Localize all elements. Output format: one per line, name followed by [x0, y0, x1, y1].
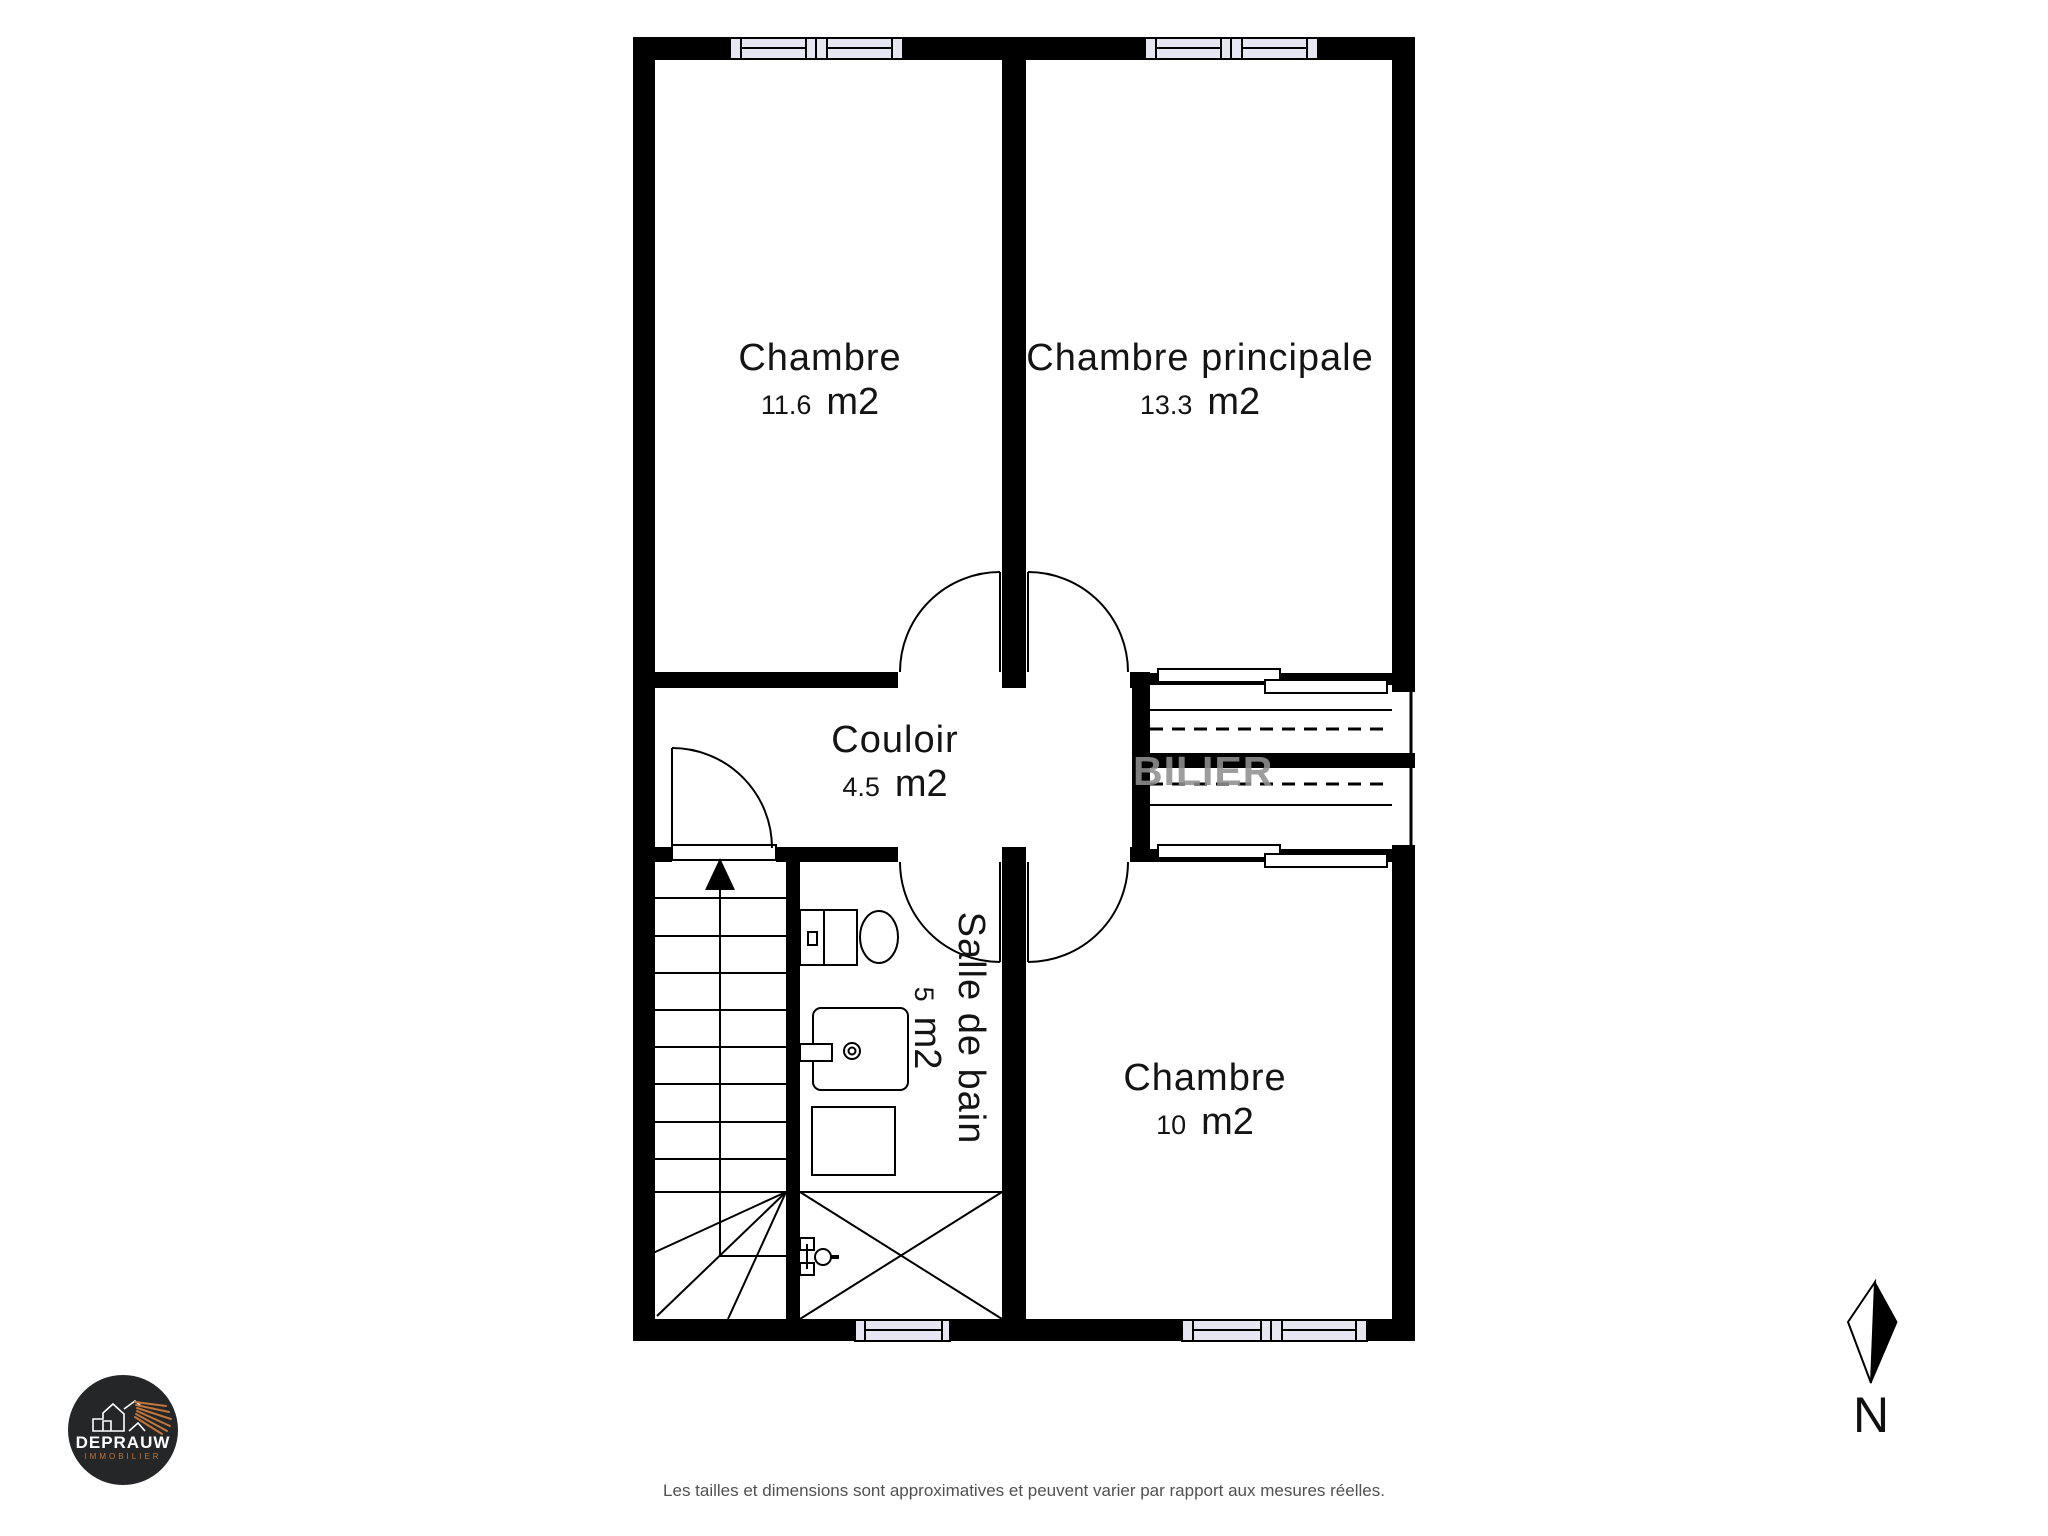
room-name: Couloir: [831, 718, 958, 762]
room-area: 4.5 m2: [831, 763, 958, 808]
north-label: N: [1853, 1386, 1889, 1444]
room-label-chambre-2: Chambre 10 m2: [1123, 1056, 1286, 1146]
room-label-salle-de-bain: Salle de bain 5 m2: [903, 912, 993, 1145]
room-area: 13.3 m2: [1026, 381, 1374, 426]
agency-logo: [68, 1375, 178, 1485]
area-value: 5: [903, 987, 945, 1002]
room-name: Chambre principale: [1026, 336, 1374, 380]
area-value: 13.3: [1140, 384, 1193, 426]
window-top-right: [1145, 38, 1318, 59]
toilet-icon: [800, 910, 898, 965]
room-label-couloir: Couloir 4.5 m2: [831, 718, 958, 808]
shower-valve-icon: [800, 1238, 839, 1275]
door-bedroom-left: [900, 572, 1000, 672]
wall-corridor-top-left: [633, 672, 898, 688]
north-compass-icon: [1848, 1282, 1897, 1383]
door-bedroom-bottom: [1028, 862, 1128, 962]
watermark-immobilier: BILIER: [1133, 748, 1273, 795]
room-label-chambre-1: Chambre 11.6 m2: [738, 336, 901, 426]
room-name: Salle de bain: [949, 912, 993, 1145]
cabinet-icon: [812, 1107, 895, 1175]
area-unit: m2: [895, 763, 948, 805]
stair-doorway-opening: [672, 845, 776, 860]
disclaimer-text: Les tailles et dimensions sont approxima…: [0, 1481, 2048, 1501]
floor-plan-drawing: [0, 0, 2048, 1536]
wall-right-upper: [1392, 37, 1415, 692]
room-name: Chambre: [1123, 1056, 1286, 1100]
wall-corridor-bottom-c: [1130, 847, 1150, 862]
area-unit: m2: [1207, 381, 1260, 423]
staircase: [653, 858, 786, 1319]
sink-icon: [800, 1008, 908, 1090]
logo-brand-text: DEPRAUW: [76, 1433, 171, 1453]
wall-corridor-bottom-a: [633, 847, 672, 862]
wall-left: [633, 37, 655, 1341]
area-value: 10: [1156, 1104, 1186, 1146]
room-area: 5 m2: [903, 912, 948, 1145]
wall-bedroom-divider: [1002, 60, 1026, 688]
wall-bath-bedroom-divider: [1002, 847, 1026, 1319]
room-label-chambre-principale: Chambre principale 13.3 m2: [1026, 336, 1374, 426]
floorplan-page: { "plan": { "rooms": [ {"name": "Chambre…: [0, 0, 2048, 1536]
room-area: 10 m2: [1123, 1101, 1286, 1146]
logo-tagline-text: IMMOBILIER: [84, 1452, 161, 1461]
wall-right-lower: [1392, 845, 1415, 1341]
wall-stairs-bath-divider: [786, 847, 800, 1319]
area-value: 11.6: [761, 384, 812, 426]
door-bedroom-principal: [1028, 572, 1128, 672]
window-bottom-bedroom: [1182, 1320, 1367, 1341]
stair-up-arrow-icon: [705, 858, 735, 890]
room-name: Chambre: [738, 336, 901, 380]
area-unit: m2: [826, 381, 879, 423]
room-area: 11.6 m2: [738, 381, 901, 426]
door-stairs: [672, 748, 772, 848]
window-top-left: [730, 38, 903, 59]
logo-circle: [68, 1375, 178, 1485]
area-unit: m2: [906, 1017, 948, 1070]
window-bathroom: [855, 1320, 950, 1341]
area-value: 4.5: [842, 766, 880, 808]
area-unit: m2: [1201, 1101, 1254, 1143]
